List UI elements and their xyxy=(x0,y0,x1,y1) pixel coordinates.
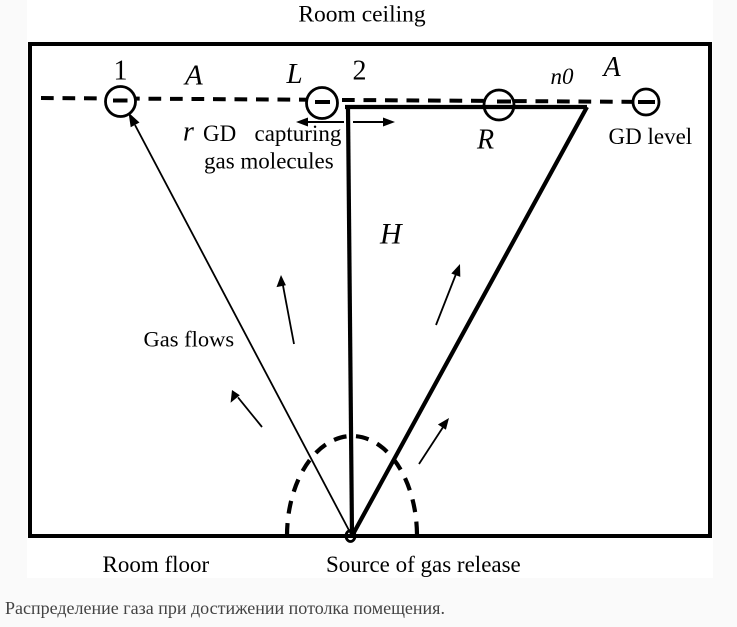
svg-text:Source of gas release: Source of gas release xyxy=(326,552,521,577)
svg-text:Room floor: Room floor xyxy=(103,552,210,577)
svg-text:A: A xyxy=(183,60,203,92)
svg-text:n0: n0 xyxy=(551,64,575,89)
svg-text:GD level: GD level xyxy=(609,124,693,149)
svg-text:1: 1 xyxy=(114,56,128,87)
svg-text:2: 2 xyxy=(353,56,367,87)
svg-text:Gas flows: Gas flows xyxy=(144,327,235,352)
svg-text:A: A xyxy=(602,52,622,83)
svg-text:H: H xyxy=(379,218,404,251)
svg-text:Room ceiling: Room ceiling xyxy=(298,2,426,28)
svg-text:gas molecules: gas molecules xyxy=(204,149,334,174)
svg-text:GD: GD xyxy=(203,121,236,146)
svg-text:capturing: capturing xyxy=(255,121,342,146)
svg-text:r: r xyxy=(183,117,194,148)
svg-text:L: L xyxy=(286,58,303,90)
svg-text:R: R xyxy=(476,125,494,156)
